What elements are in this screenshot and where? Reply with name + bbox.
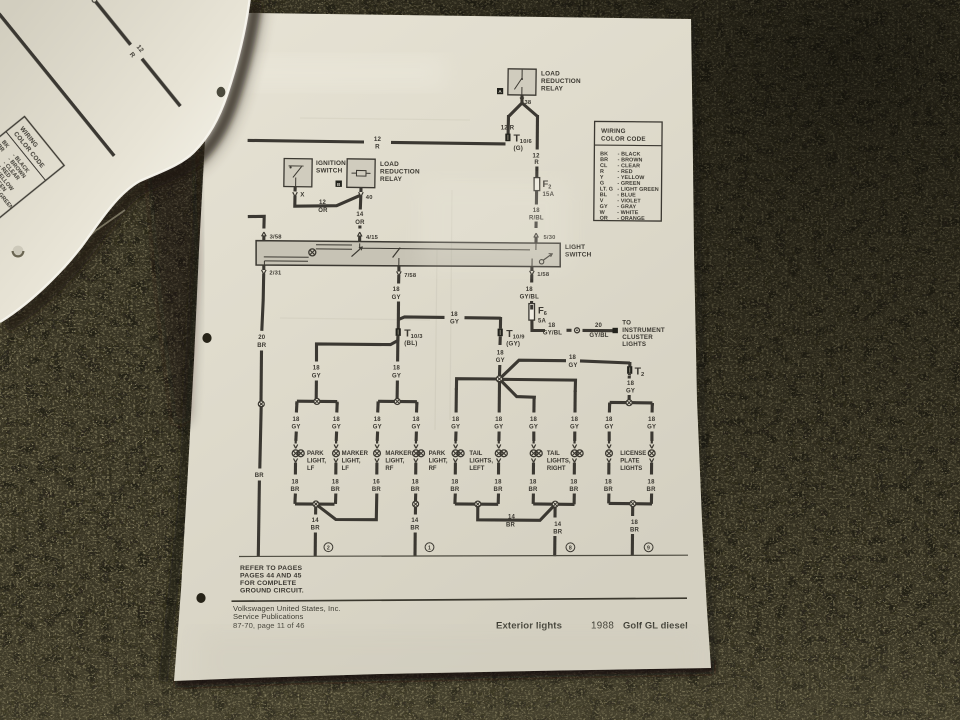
svg-text:TAIL: TAIL <box>469 451 482 457</box>
svg-text:1/58: 1/58 <box>537 272 550 278</box>
svg-text:14: 14 <box>356 212 364 218</box>
svg-text:LIGHT,: LIGHT, <box>342 459 361 465</box>
svg-text:18: 18 <box>292 417 300 423</box>
svg-text:GY: GY <box>392 295 401 301</box>
svg-text:GY: GY <box>451 424 460 430</box>
svg-text:LOAD: LOAD <box>541 71 560 78</box>
svg-text:2: 2 <box>641 372 644 378</box>
svg-text:87-70, page 11 of 46: 87-70, page 11 of 46 <box>233 621 305 630</box>
svg-text:LIGHTS: LIGHTS <box>622 341 646 348</box>
svg-text:5A: 5A <box>538 319 547 325</box>
svg-text:(BL): (BL) <box>404 340 417 347</box>
svg-text:MARKER: MARKER <box>385 451 412 457</box>
svg-text:COLOR CODE: COLOR CODE <box>601 136 646 143</box>
svg-text:12: 12 <box>319 200 327 206</box>
svg-text:GY: GY <box>373 424 382 430</box>
svg-text:X: X <box>300 191 305 198</box>
svg-text:Service Publications: Service Publications <box>233 612 303 621</box>
svg-text:LIGHTS: LIGHTS <box>620 466 642 472</box>
svg-text:LICENSE: LICENSE <box>620 451 646 457</box>
svg-text:10/6: 10/6 <box>520 139 533 145</box>
svg-text:14: 14 <box>554 522 562 528</box>
svg-text:BR: BR <box>553 530 563 536</box>
svg-text:BR: BR <box>647 487 657 493</box>
svg-text:SWITCH: SWITCH <box>316 167 343 174</box>
svg-text:OR: OR <box>600 216 608 222</box>
svg-text:GY: GY <box>392 373 401 379</box>
svg-text:18: 18 <box>605 479 613 485</box>
svg-text:(GY): (GY) <box>506 341 520 348</box>
svg-text:REFER TO PAGES: REFER TO PAGES <box>240 565 302 572</box>
svg-text:LF: LF <box>307 466 315 472</box>
svg-text:18: 18 <box>393 366 401 372</box>
svg-text:7/58: 7/58 <box>404 273 417 279</box>
svg-text:14: 14 <box>508 514 516 520</box>
svg-text:16: 16 <box>373 479 381 485</box>
svg-text:BR: BR <box>494 487 504 493</box>
svg-text:PAGES 44 AND 45: PAGES 44 AND 45 <box>240 572 302 579</box>
svg-text:GY: GY <box>604 424 613 430</box>
svg-text:PLATE: PLATE <box>620 459 639 465</box>
svg-text:GY: GY <box>312 373 321 379</box>
svg-text:Golf GL diesel: Golf GL diesel <box>623 620 688 631</box>
svg-text:BR: BR <box>528 487 538 493</box>
svg-text:MARKER: MARKER <box>342 451 369 457</box>
svg-text:14: 14 <box>411 518 419 524</box>
svg-text:BR: BR <box>604 487 614 493</box>
svg-text:18: 18 <box>631 520 639 526</box>
svg-text:LIGHTS,: LIGHTS, <box>469 459 493 465</box>
svg-text:4/15: 4/15 <box>366 235 379 241</box>
svg-text:GY: GY <box>647 424 656 430</box>
svg-text:18: 18 <box>412 479 420 485</box>
svg-text:BR: BR <box>411 487 421 493</box>
svg-text:40: 40 <box>366 195 373 201</box>
svg-text:18: 18 <box>648 417 656 423</box>
svg-text:RF: RF <box>385 466 393 472</box>
svg-text:PARK: PARK <box>429 451 446 457</box>
svg-text:BR: BR <box>255 473 265 479</box>
svg-text:18: 18 <box>497 350 505 356</box>
svg-text:BR: BR <box>331 487 341 493</box>
svg-text:12: 12 <box>533 153 541 159</box>
svg-text:LIGHT,: LIGHT, <box>385 459 404 465</box>
svg-text:BR: BR <box>410 526 420 532</box>
svg-text:GY: GY <box>332 424 341 430</box>
svg-text:10/9: 10/9 <box>513 335 526 341</box>
svg-text:18: 18 <box>548 323 556 329</box>
svg-text:BR: BR <box>569 487 579 493</box>
svg-text:GY/BL: GY/BL <box>543 331 562 337</box>
svg-text:REDUCTION: REDUCTION <box>380 168 420 175</box>
svg-text:BR: BR <box>290 487 300 493</box>
svg-text:RIGHT: RIGHT <box>547 466 566 472</box>
svg-text:BR: BR <box>372 487 382 493</box>
svg-text:BR: BR <box>311 526 321 532</box>
svg-text:WIRING: WIRING <box>601 128 626 135</box>
svg-text:6: 6 <box>544 311 547 317</box>
svg-text:12 R: 12 R <box>501 126 515 132</box>
svg-text:18: 18 <box>313 366 321 372</box>
svg-text:18: 18 <box>333 417 341 423</box>
svg-text:18: 18 <box>413 417 421 423</box>
svg-text:14: 14 <box>312 518 320 524</box>
svg-text:2: 2 <box>327 546 330 552</box>
svg-text:20: 20 <box>258 335 266 341</box>
svg-text:3/58: 3/58 <box>270 234 283 240</box>
svg-text:LOAD: LOAD <box>380 161 399 168</box>
svg-text:18: 18 <box>291 479 299 485</box>
svg-text:LIGHT,: LIGHT, <box>307 459 326 465</box>
svg-text:Exterior lights: Exterior lights <box>496 621 562 632</box>
svg-text:RF: RF <box>429 466 437 472</box>
svg-text:RELAY: RELAY <box>380 176 403 183</box>
svg-text:18: 18 <box>605 417 613 423</box>
svg-text:GY: GY <box>626 388 635 394</box>
svg-text:OR: OR <box>318 208 328 214</box>
svg-text:GY: GY <box>412 424 421 430</box>
svg-text:18: 18 <box>648 479 656 485</box>
svg-text:LEFT: LEFT <box>469 466 484 472</box>
svg-text:18: 18 <box>569 355 577 361</box>
svg-text:20: 20 <box>595 323 603 329</box>
svg-text:GY/BL: GY/BL <box>520 294 539 300</box>
svg-text:18: 18 <box>530 417 538 423</box>
svg-text:GY: GY <box>570 424 579 430</box>
svg-text:GROUND CIRCUIT.: GROUND CIRCUIT. <box>240 587 304 594</box>
svg-text:LIGHTS,: LIGHTS, <box>547 459 571 465</box>
svg-text:12: 12 <box>374 136 382 143</box>
svg-text:- ORANGE: - ORANGE <box>617 216 645 222</box>
svg-text:R: R <box>534 160 539 166</box>
svg-text:GY: GY <box>494 424 503 430</box>
svg-text:18: 18 <box>526 287 534 293</box>
svg-text:1: 1 <box>428 546 431 552</box>
svg-text:GY: GY <box>496 358 505 364</box>
svg-text:BR: BR <box>450 487 460 493</box>
svg-text:BR: BR <box>506 522 516 528</box>
svg-text:18: 18 <box>332 479 340 485</box>
svg-text:GY/BL: GY/BL <box>589 333 608 339</box>
svg-text:18: 18 <box>374 417 382 423</box>
svg-text:INSTRUMENT: INSTRUMENT <box>622 327 665 334</box>
svg-text:10/3: 10/3 <box>411 334 424 340</box>
svg-text:18: 18 <box>451 312 459 318</box>
svg-text:2/31: 2/31 <box>269 271 282 277</box>
svg-text:18: 18 <box>529 479 537 485</box>
svg-text:LF: LF <box>342 466 350 472</box>
svg-text:FOR COMPLETE: FOR COMPLETE <box>240 580 297 587</box>
svg-text:CLUSTER: CLUSTER <box>622 334 653 341</box>
svg-text:RELAY: RELAY <box>541 86 564 93</box>
svg-text:18: 18 <box>451 479 459 485</box>
svg-text:LIGHT,: LIGHT, <box>429 459 448 465</box>
svg-text:BR: BR <box>630 528 640 534</box>
svg-text:(G): (G) <box>514 145 524 152</box>
svg-text:OR: OR <box>355 220 365 226</box>
svg-text:PARK: PARK <box>307 451 324 457</box>
svg-text:GY: GY <box>291 424 300 430</box>
svg-text:9: 9 <box>647 546 650 552</box>
svg-text:18: 18 <box>452 417 460 423</box>
svg-text:8: 8 <box>569 546 572 552</box>
svg-text:18: 18 <box>393 287 401 293</box>
svg-text:18: 18 <box>627 381 635 387</box>
svg-text:BR: BR <box>257 343 267 349</box>
svg-text:18: 18 <box>570 479 578 485</box>
svg-text:R: R <box>375 144 380 151</box>
svg-text:GY: GY <box>529 424 538 430</box>
svg-text:REDUCTION: REDUCTION <box>541 78 581 85</box>
svg-text:TO: TO <box>622 320 631 327</box>
svg-text:IGNITION: IGNITION <box>316 160 346 167</box>
svg-text:18: 18 <box>571 417 579 423</box>
svg-text:GY: GY <box>568 363 577 369</box>
svg-text:1988: 1988 <box>591 621 614 632</box>
svg-text:18: 18 <box>495 417 503 423</box>
svg-text:TAIL: TAIL <box>547 451 560 457</box>
svg-text:18: 18 <box>495 479 503 485</box>
